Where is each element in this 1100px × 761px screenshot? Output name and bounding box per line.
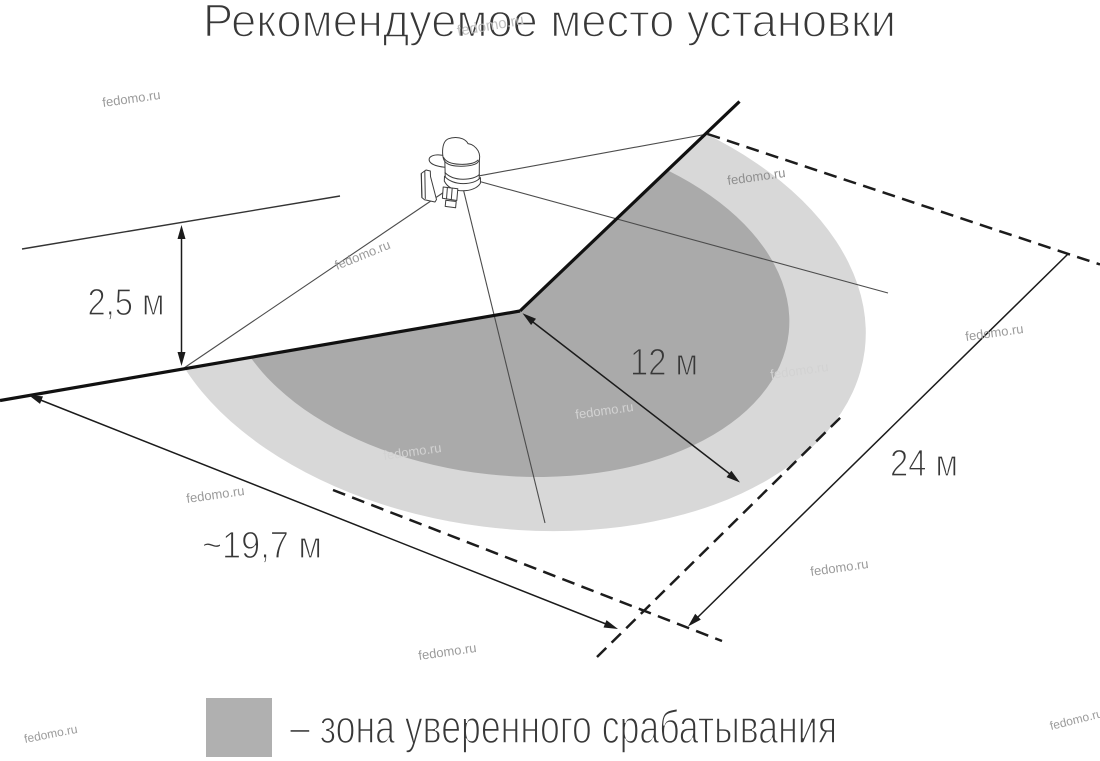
svg-text:2,5 м: 2,5 м [88,282,165,324]
svg-text:24 м: 24 м [890,443,958,485]
svg-text:– зона уверенного срабатывания: – зона уверенного срабатывания [290,700,837,753]
svg-text:~19,7 м: ~19,7 м [202,525,322,567]
svg-text:Рекомендуемое место установки: Рекомендуемое место установки [203,0,896,47]
svg-text:12 м: 12 м [630,342,698,384]
